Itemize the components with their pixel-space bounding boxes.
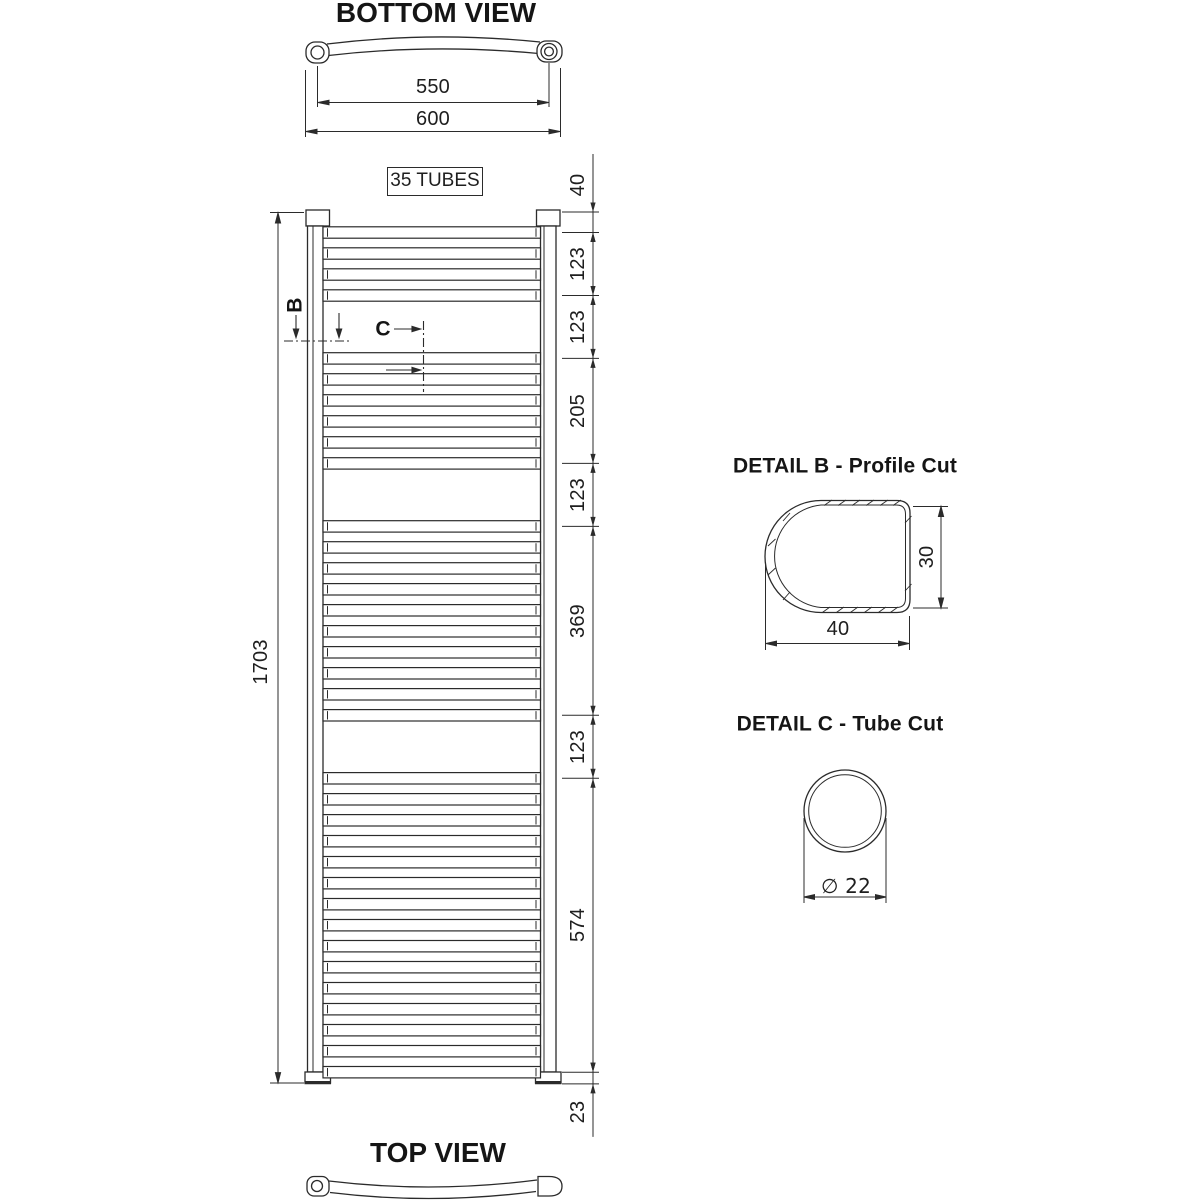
top-view-right-cap [538,1177,562,1197]
dim-chain-label-8: 23 [568,1101,588,1124]
dim-chain-label-7: 574 [568,908,588,942]
bottom-view-dim-550: 550 [416,77,450,97]
tube-group4-11 [323,983,541,994]
tube-group3-8 [323,668,541,679]
dim-chain-label-2: 123 [568,310,588,344]
tube-group3-3 [323,563,541,574]
top-view-title: TOP VIEW [370,1139,506,1167]
detail-b-title: DETAIL B - Profile Cut [733,456,957,477]
tube-group3-1 [323,521,541,532]
overall-height-dimension [270,213,304,1084]
tube-group2-6 [323,458,541,469]
bottom-view-title: BOTTOM VIEW [336,0,536,27]
detail-b-dim-30: 30 [917,546,937,569]
right-rail-top-cap [537,210,561,226]
overall-height-label: 1703 [251,639,271,684]
tube-group4-9 [323,941,541,952]
top-view-drawing [307,1177,562,1199]
tube-group4-6 [323,878,541,889]
tube-group4-13 [323,1025,541,1036]
tube-group4-1 [323,773,541,784]
tube-group3-9 [323,689,541,700]
front-view-tubes [323,227,541,1078]
height-chain-dimensions [562,154,599,1137]
tube-group2-5 [323,437,541,448]
tube-group1-1 [323,227,541,238]
tube-group1-4 [323,290,541,301]
detail-c-title: DETAIL C - Tube Cut [737,714,944,735]
tube-group4-2 [323,794,541,805]
tube-group3-7 [323,647,541,658]
tube-group3-4 [323,584,541,595]
tube-group3-5 [323,605,541,616]
top-view-left-cap [307,1177,329,1197]
dim-chain-label-6: 123 [568,730,588,764]
detail-b-dim-40: 40 [827,619,850,639]
bottom-view-left-cap [306,42,329,63]
tube-group2-2 [323,374,541,385]
tube-group4-7 [323,899,541,910]
tube-group3-10 [323,710,541,721]
drawing-linework [0,0,1200,1200]
tubes-count-box: 35 TUBES [387,167,483,196]
section-c-marker-label: C [375,319,390,340]
right-rail [541,226,557,1072]
tube-group4-8 [323,920,541,931]
left-rail-top-cap [306,210,330,226]
dim-chain-label-1: 123 [568,247,588,281]
left-rail [308,226,324,1072]
tube-group4-10 [323,962,541,973]
dim-chain-label-3: 205 [568,394,588,428]
dim-chain-label-4: 123 [568,478,588,512]
tube-group3-2 [323,542,541,553]
technical-drawing-sheet: BOTTOM VIEW 550 600 35 TUBES 1703 B C DE… [0,0,1200,1200]
tube-group4-4 [323,836,541,847]
tube-group4-12 [323,1004,541,1015]
dim-chain-label-5: 369 [568,604,588,638]
dim-chain-label-0: 40 [568,174,588,197]
tube-group4-15 [323,1067,541,1078]
tube-group1-3 [323,269,541,280]
tube-group2-1 [323,353,541,364]
detail-c-dim-diameter: ∅ 22 [821,876,871,896]
tube-group3-6 [323,626,541,637]
tube-group4-3 [323,815,541,826]
tube-group2-3 [323,395,541,406]
tube-group2-4 [323,416,541,427]
tube-group4-14 [323,1046,541,1057]
section-b-marker-label: B [285,297,306,312]
tube-group4-5 [323,857,541,868]
detail-b-drawing [765,500,948,650]
tube-group1-2 [323,248,541,259]
bottom-view-dim-600: 600 [416,109,450,129]
